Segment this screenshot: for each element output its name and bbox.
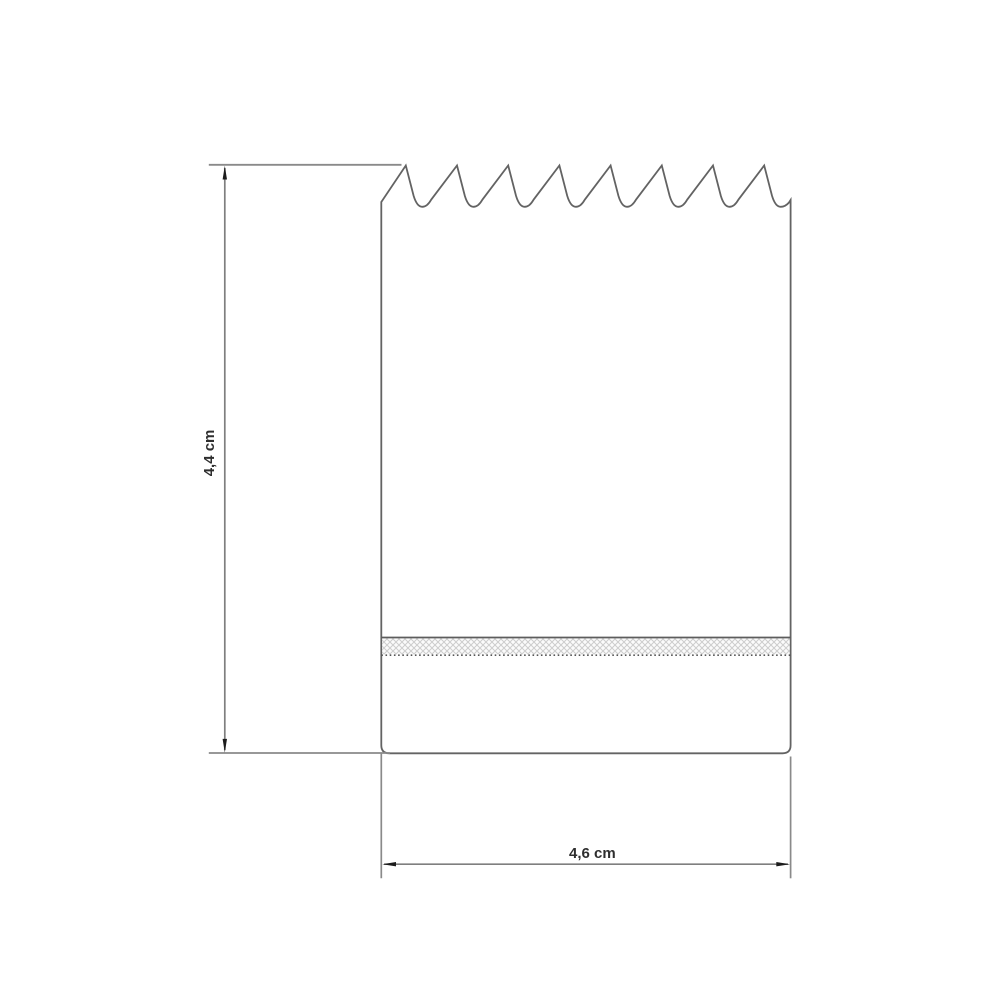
svg-text:4,6 cm: 4,6 cm xyxy=(569,845,616,862)
svg-text:4,4 cm: 4,4 cm xyxy=(201,430,218,477)
